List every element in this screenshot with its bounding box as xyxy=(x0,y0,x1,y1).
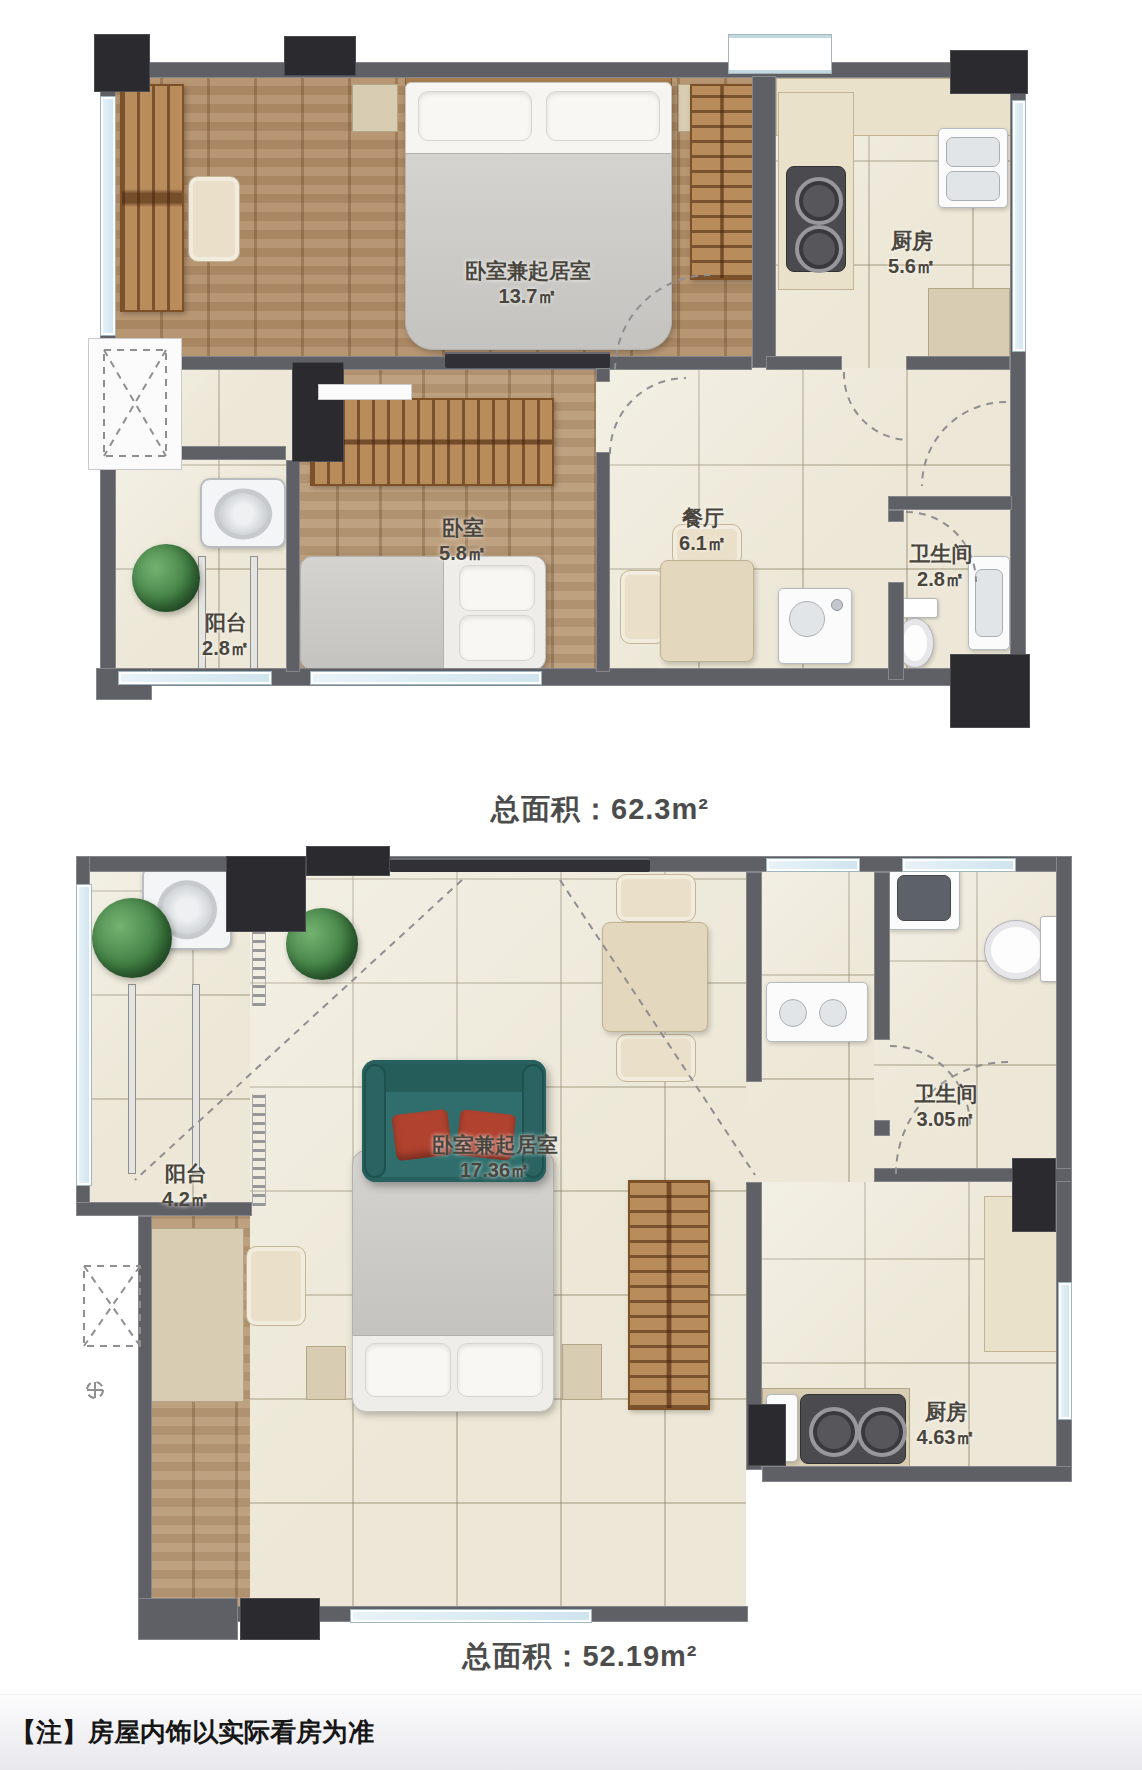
stove xyxy=(800,1394,906,1464)
room-name: 阳台 xyxy=(162,1161,210,1187)
room-area: 4.2㎡ xyxy=(162,1187,210,1211)
column xyxy=(950,50,1028,94)
window xyxy=(310,671,542,685)
double-bed xyxy=(405,82,672,350)
nightstand xyxy=(352,84,398,132)
kitchen-sink xyxy=(938,128,1008,208)
column xyxy=(284,36,356,76)
window xyxy=(350,1609,592,1623)
double-bed xyxy=(352,1150,554,1412)
wall xyxy=(874,872,890,1040)
room-label-balcony: 阳台 2.8㎡ xyxy=(202,610,250,660)
burner xyxy=(809,1407,859,1457)
bed-blanket xyxy=(405,153,672,350)
pillow xyxy=(459,565,535,611)
sliding-door xyxy=(445,352,610,368)
room-area: 17.36㎡ xyxy=(432,1158,558,1182)
nightstand xyxy=(306,1346,346,1400)
wall xyxy=(766,356,842,370)
window xyxy=(1058,1282,1072,1420)
wall xyxy=(596,452,610,672)
bathroom-sink xyxy=(968,556,1010,650)
sink-basin xyxy=(946,137,1000,167)
room-name: 厨房 xyxy=(888,228,936,254)
room-name: 卫生间 xyxy=(915,1081,978,1107)
column xyxy=(292,362,344,462)
basin xyxy=(819,999,847,1027)
room-area: 4.63㎡ xyxy=(917,1425,976,1449)
plant xyxy=(92,898,172,978)
wall xyxy=(888,496,1012,510)
sofa-back xyxy=(372,1064,536,1092)
window xyxy=(766,858,860,872)
room-name: 阳台 xyxy=(202,610,250,636)
wall xyxy=(888,582,904,680)
room-name: 卫生间 xyxy=(910,541,973,567)
sofa-arm xyxy=(364,1064,386,1178)
window xyxy=(118,671,272,685)
column xyxy=(226,856,306,932)
pillow xyxy=(418,91,532,141)
wardrobe xyxy=(310,398,554,486)
burner xyxy=(857,1407,907,1457)
floorplan-page: 卧室兼起居室 13.7㎡ 厨房 5.6㎡ 餐厅 6.1㎡ 卧室 5.8㎡ 阳台 … xyxy=(0,0,1142,1770)
room-label-dining: 餐厅 6.1㎡ xyxy=(679,505,727,555)
room-name: 卧室兼起居室 xyxy=(432,1132,558,1158)
room-name: 厨房 xyxy=(917,1399,976,1425)
room-area: 13.7㎡ xyxy=(465,284,591,308)
room-name: 卧室兼起居室 xyxy=(465,258,591,284)
room-label-bathroom: 卫生间 3.05㎡ xyxy=(915,1081,978,1131)
pillow xyxy=(546,91,660,141)
bathroom-sink xyxy=(886,866,960,930)
window xyxy=(902,858,1016,872)
room-label-kitchen: 厨房 5.6㎡ xyxy=(888,228,936,278)
footer-note-text: 房屋内饰以实际看房为准 xyxy=(88,1717,374,1747)
column xyxy=(748,1404,786,1466)
sliding-door xyxy=(390,858,650,872)
bed-blanket xyxy=(300,556,444,670)
nightstand xyxy=(562,1344,602,1400)
window xyxy=(76,884,92,1186)
dining-table xyxy=(602,922,708,1032)
chair xyxy=(188,176,240,262)
room-label-main: 卧室兼起居室 17.36㎡ xyxy=(432,1132,558,1182)
shelf xyxy=(318,384,412,400)
basin xyxy=(779,999,807,1027)
column xyxy=(306,846,390,876)
plant xyxy=(132,544,200,612)
fridge-cabinet xyxy=(928,288,1010,366)
radiator-coil xyxy=(252,1094,266,1206)
window xyxy=(1012,100,1026,352)
total-area-prefix: 总面积： xyxy=(491,793,611,825)
wardrobe xyxy=(628,1180,710,1410)
wall xyxy=(906,356,1010,370)
elevator-shaft xyxy=(88,338,182,470)
room-label-balcony: 阳台 4.2㎡ xyxy=(162,1161,210,1211)
room-label-kitchen: 厨房 4.63㎡ xyxy=(917,1399,976,1449)
stove xyxy=(786,166,846,272)
pillow xyxy=(365,1343,451,1397)
room-label-main: 卧室兼起居室 13.7㎡ xyxy=(465,258,591,308)
wash-counter xyxy=(766,982,868,1042)
footer-note: 【注】房屋内饰以实际看房为准 xyxy=(10,1715,374,1750)
room-area: 5.8㎡ xyxy=(439,541,487,565)
wall xyxy=(752,76,776,368)
total-area-value: 52.19m² xyxy=(582,1640,697,1672)
wall xyxy=(888,510,904,522)
room-label-bathroom: 卫生间 2.8㎡ xyxy=(910,541,973,591)
wall xyxy=(138,1216,152,1622)
wall xyxy=(874,1120,890,1136)
room-area: 5.6㎡ xyxy=(888,254,936,278)
chair xyxy=(616,874,696,922)
total-area-plan-2: 总面积：52.19m² xyxy=(462,1637,697,1677)
laundry-basin xyxy=(778,588,852,664)
window xyxy=(728,34,832,74)
room-area: 3.05㎡ xyxy=(915,1107,978,1131)
sink-basin xyxy=(897,875,951,921)
total-area-value: 62.3m² xyxy=(611,793,709,825)
drying-rack xyxy=(192,984,200,1174)
wall xyxy=(100,62,1026,78)
desk xyxy=(150,1228,244,1402)
sink-basin xyxy=(975,569,1003,637)
cabinet xyxy=(120,84,184,312)
pillow xyxy=(459,615,535,661)
wall xyxy=(116,356,752,370)
room-area: 2.8㎡ xyxy=(202,636,250,660)
footer-note-prefix: 【注】 xyxy=(10,1717,88,1747)
chair xyxy=(246,1246,306,1326)
room-area: 6.1㎡ xyxy=(679,531,727,555)
chair xyxy=(616,1034,696,1082)
column xyxy=(94,34,150,92)
column xyxy=(240,1598,320,1640)
single-bed xyxy=(300,556,546,670)
pillow xyxy=(457,1343,543,1397)
wall xyxy=(286,460,300,672)
washing-machine xyxy=(200,478,286,548)
burner xyxy=(795,225,843,273)
footer-note-bar: 【注】房屋内饰以实际看房为准 xyxy=(0,1694,1142,1770)
burner xyxy=(795,177,843,225)
room-name: 餐厅 xyxy=(679,505,727,531)
wall xyxy=(762,1466,1072,1482)
total-area-plan-1: 总面积：62.3m² xyxy=(491,790,709,830)
wall xyxy=(746,872,762,1082)
basin xyxy=(789,601,825,637)
wardrobe xyxy=(690,84,754,280)
drying-rack xyxy=(250,556,258,670)
dining-table xyxy=(660,560,754,662)
column xyxy=(138,1598,238,1640)
drying-rack xyxy=(128,984,136,1174)
room-name: 卧室 xyxy=(439,515,487,541)
sink-basin xyxy=(946,171,1000,201)
wall xyxy=(596,368,610,382)
faucet xyxy=(831,599,843,611)
column xyxy=(1012,1158,1056,1232)
room-label-bedroom: 卧室 5.8㎡ xyxy=(439,515,487,565)
room-area: 2.8㎡ xyxy=(910,567,973,591)
column xyxy=(950,654,1030,728)
window xyxy=(100,96,116,336)
total-area-prefix: 总面积： xyxy=(462,1640,582,1672)
toilet-bowl xyxy=(984,920,1048,980)
